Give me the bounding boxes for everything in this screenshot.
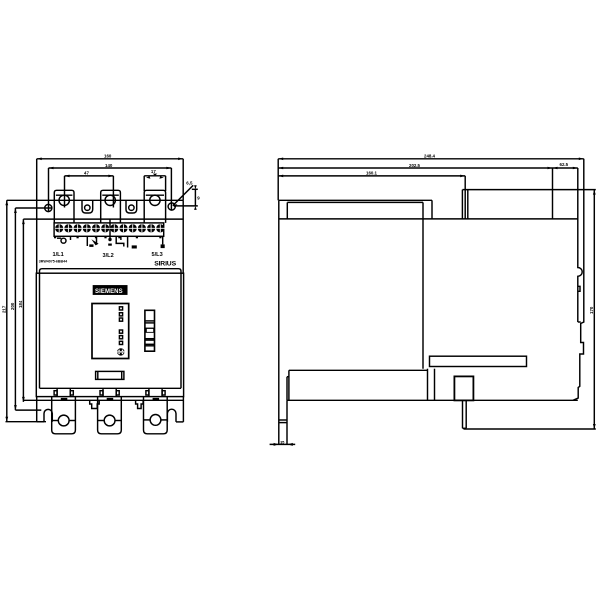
svg-text:SIEMENS: SIEMENS (95, 289, 123, 295)
svg-text:SIRIUS: SIRIUS (154, 261, 176, 268)
svg-text:170: 170 (589, 306, 594, 314)
svg-text:3/L2: 3/L2 (103, 253, 114, 259)
svg-text:5/L3: 5/L3 (152, 252, 163, 258)
svg-text:17: 17 (151, 169, 156, 174)
svg-text:62.5: 62.5 (560, 162, 569, 167)
svg-text:202.5: 202.5 (409, 163, 421, 168)
svg-text:35: 35 (280, 441, 284, 445)
svg-text:1/L1: 1/L1 (53, 252, 64, 258)
svg-text:160: 160 (104, 154, 112, 159)
svg-text:217: 217 (1, 305, 6, 313)
svg-text:3RW4075-6BB44: 3RW4075-6BB44 (39, 260, 67, 264)
svg-text:47: 47 (84, 171, 89, 176)
svg-text:6,5: 6,5 (186, 180, 193, 185)
svg-text:9: 9 (197, 196, 200, 201)
svg-text:160.1: 160.1 (366, 171, 378, 176)
svg-text:200: 200 (10, 302, 15, 310)
svg-text:248.4: 248.4 (424, 154, 436, 159)
svg-text:184: 184 (18, 300, 23, 308)
svg-text:140: 140 (105, 163, 113, 168)
